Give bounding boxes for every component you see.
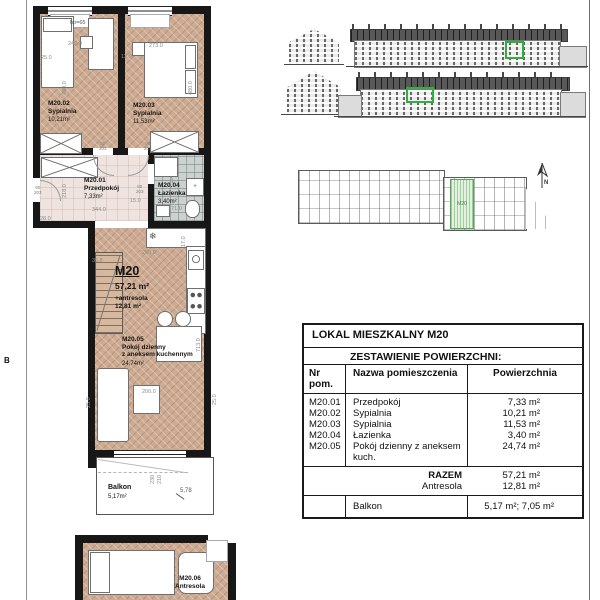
room-area: 7,33m² xyxy=(84,194,119,202)
unit-id: M20 xyxy=(115,264,149,278)
dim-label: 25.0 xyxy=(86,397,92,408)
table-header-row: Nr pom. Nazwa pomieszczenia Powierzchnia xyxy=(304,365,582,394)
keyplan-unit-highlight: M20 xyxy=(450,179,474,229)
wall xyxy=(88,221,95,457)
drawing-sheet: B xyxy=(0,0,600,600)
room-id: M20.05 xyxy=(122,336,193,344)
room-label-m20-04: M20.04 Łazienka 3,40m² xyxy=(158,182,185,207)
room-id: M20.02 xyxy=(48,100,77,108)
room-name: Łazienka xyxy=(158,190,185,198)
summary-value-antresola: 12,81 m² xyxy=(468,481,540,492)
dim-label: 430.0 xyxy=(62,81,68,95)
room-label-m20-01: M20.01 Przedpokój 7,33m² xyxy=(84,177,119,202)
dim-label: 28.0 xyxy=(40,216,51,222)
chair-symbol xyxy=(80,36,93,49)
elevation-groundline xyxy=(281,114,345,115)
dim-label: 200.0 xyxy=(142,389,156,395)
cell-area: 7,33 m² xyxy=(468,397,582,408)
level-marker: 5,78 xyxy=(180,488,192,494)
window-sill xyxy=(130,14,170,28)
door-size-label: 80 203 xyxy=(136,184,144,194)
balcony-row-value: 5,17 m²; 7,05 m² xyxy=(468,496,582,517)
col-header-area: Powierzchnia xyxy=(468,365,582,393)
antresola-label: M20.06 Antresola xyxy=(158,575,222,590)
room-name: Przedpokój xyxy=(84,185,119,193)
dim-label: 25.0 xyxy=(41,55,52,61)
room-label-m20-03: M20.03 Sypialnia 11,53m² xyxy=(133,102,162,127)
cell-area: 3,40 m² xyxy=(468,430,582,441)
wardrobe-symbol xyxy=(41,157,98,178)
elevation-groundline xyxy=(334,116,586,117)
col-header-nr: Nr pom. xyxy=(304,365,346,393)
wall xyxy=(228,543,236,600)
kitchen-sink-symbol xyxy=(188,250,204,270)
table-col-name: Przedpokój Sypialnia Sypialnia Łazienka … xyxy=(346,394,468,466)
balcony-area: 5,17m² xyxy=(108,494,131,502)
wall xyxy=(118,14,125,152)
dim-label: 12.0 xyxy=(121,54,132,60)
elevation-groundline xyxy=(284,64,344,65)
room-id: M20.04 xyxy=(158,182,185,190)
wall xyxy=(92,6,128,14)
unit-title-block: M20 57,21 m² +antresola 12,81 m² xyxy=(115,264,149,310)
toilet-symbol xyxy=(185,200,200,218)
cell-area: 11,53 m² xyxy=(468,419,582,430)
room-area: 3,40m² xyxy=(158,199,185,207)
wall xyxy=(148,221,211,228)
wall xyxy=(113,148,128,155)
wall xyxy=(75,535,208,543)
summary-label-antresola: Antresola xyxy=(304,481,462,492)
table-col-area: 7,33 m² 10,21 m² 11,53 m² 3,40 m² 24,74 … xyxy=(468,394,582,466)
balcony-dashed-line xyxy=(98,472,188,473)
unit-area: 57,21 m² xyxy=(115,281,149,291)
dim-label: 344.0 xyxy=(92,207,106,213)
room-name: z aneksem kuchennym xyxy=(122,351,193,359)
table-body: M20.01 M20.02 M20.03 M20.04 M20.05 Przed… xyxy=(304,394,582,467)
stove-symbol xyxy=(187,288,205,314)
room-label-m20-02: M20.02 Sypialnia 10,21m² xyxy=(48,100,77,125)
unit-antresola-label: +antresola xyxy=(115,295,149,303)
balcony-name: Balkon xyxy=(108,484,131,492)
wall xyxy=(33,221,95,228)
room-label-m20-05: M20.05 Pokój dzienny z aneksem kuchennym… xyxy=(122,336,193,368)
wall xyxy=(75,535,83,600)
pillow-symbol xyxy=(185,45,196,69)
nightstand-symbol xyxy=(132,42,145,56)
elevation-annex xyxy=(559,46,587,68)
elevation-annex xyxy=(560,92,586,118)
sheet-frame-right xyxy=(589,0,590,600)
elevation-front-1 xyxy=(354,40,561,68)
cell-name: Łazienka xyxy=(353,430,467,441)
dim-label: 210 xyxy=(157,475,163,484)
cell-nr: M20.04 xyxy=(309,430,345,441)
cell-name: Sypialnia xyxy=(353,408,467,419)
dim-label: 273.0 xyxy=(149,43,163,49)
elevation-side-1 xyxy=(289,29,339,64)
cell-empty xyxy=(304,496,346,517)
col-header-name: Nazwa pomieszczenia xyxy=(346,365,468,393)
room-name: Sypialnia xyxy=(48,108,77,116)
room-area: 24,74m² xyxy=(122,361,193,369)
areas-table: LOKAL MIESZKALNY M20 ZESTAWIENIE POWIERZ… xyxy=(302,323,584,519)
door-size-label: 80 203 xyxy=(99,141,107,151)
table-col-nr: M20.01 M20.02 M20.03 M20.04 M20.05 xyxy=(304,394,346,466)
dim-label: 713.0 xyxy=(196,338,202,352)
dim-label: 250.0 xyxy=(142,250,156,256)
pillow-symbol xyxy=(90,552,110,593)
cell-area: 10,21 m² xyxy=(468,408,582,419)
antresola-name: Antresola xyxy=(158,583,222,591)
dim-label: hp=65 xyxy=(70,20,85,26)
unit-highlight-box xyxy=(505,41,524,59)
door-height: 203 xyxy=(34,190,42,195)
room-name: Pokój dzienny xyxy=(122,344,193,352)
room-area: 11,53m² xyxy=(133,119,162,127)
pillow-symbol xyxy=(43,18,72,32)
dim-label: 171.0 xyxy=(168,206,182,212)
antresola-id: M20.06 xyxy=(158,575,222,583)
room-name: Sypialnia xyxy=(133,110,162,118)
room-id: M20.01 xyxy=(84,177,119,185)
fridge-snowflake-icon: ❄ xyxy=(149,231,157,242)
dim-label: 35.8 xyxy=(92,258,103,264)
dim-label: 242.0 xyxy=(68,41,82,47)
door-size-label: 80 203 xyxy=(144,141,152,151)
door-height: 203 xyxy=(99,146,107,151)
dim-label: 25.0 xyxy=(212,394,218,405)
balcony-row-label: Balkon xyxy=(346,496,468,517)
cell-nr: M20.03 xyxy=(309,419,345,430)
elevation-side-2 xyxy=(287,71,341,114)
door-size-label: 90 203 xyxy=(34,185,42,195)
dim-label: 15.0 xyxy=(130,198,141,204)
sofa-symbol xyxy=(97,368,129,442)
cell-nr: M20.02 xyxy=(309,408,345,419)
section-marker-b: B xyxy=(4,356,10,365)
north-arrow: N xyxy=(533,162,551,195)
summary-label-razem: RAZEM xyxy=(304,470,462,481)
table-title: LOKAL MIESZKALNY M20 xyxy=(304,325,582,348)
table-summary: RAZEM Antresola 57,21 m² 12,81 m² xyxy=(304,467,582,496)
chair-symbol xyxy=(157,311,173,327)
cell-name: Przedpokój xyxy=(353,397,467,408)
dim-label: 17.0 xyxy=(181,236,187,247)
cell-name: Pokój dzienny z aneksem kuch. xyxy=(353,441,467,463)
cell-area: 24,74 m² xyxy=(468,441,582,452)
north-label: N xyxy=(544,180,548,186)
dim-label: 480.0 xyxy=(188,81,194,95)
shower-symbol xyxy=(154,157,178,177)
room-id: M20.03 xyxy=(133,102,162,110)
door-height: 203 xyxy=(136,189,144,194)
closet-symbol xyxy=(206,540,228,562)
table-subtitle: ZESTAWIENIE POWIERZCHNI: xyxy=(304,348,582,365)
keyplan-unit-label: M20 xyxy=(457,201,467,207)
balcony-label: Balkon 5,17m² xyxy=(108,484,131,501)
dim-label: 218.0 xyxy=(62,184,68,198)
cell-nr: M20.05 xyxy=(309,441,345,452)
chair-symbol xyxy=(175,311,191,327)
sheet-frame-left xyxy=(26,0,27,600)
elevation-annex xyxy=(338,95,362,118)
keyplan-building-left xyxy=(298,170,445,224)
unit-highlight-box xyxy=(406,87,434,103)
washing-machine-symbol: + xyxy=(186,178,204,196)
summary-value-razem: 57,21 m² xyxy=(468,470,540,481)
door-height: 203 xyxy=(144,146,152,151)
unit-antresola-area: 12,81 m² xyxy=(115,303,149,311)
elevation-groundline xyxy=(346,66,588,67)
cell-name: Sypialnia xyxy=(353,419,467,430)
wardrobe-symbol xyxy=(150,131,199,153)
elevation-front-2 xyxy=(360,89,562,118)
cell-nr: M20.01 xyxy=(309,397,345,408)
wardrobe-symbol xyxy=(40,133,82,154)
dim-label: 230 xyxy=(150,475,156,484)
table-balcony-row: Balkon 5,17 m²; 7,05 m² xyxy=(304,496,582,517)
room-area: 10,21m² xyxy=(48,117,77,125)
